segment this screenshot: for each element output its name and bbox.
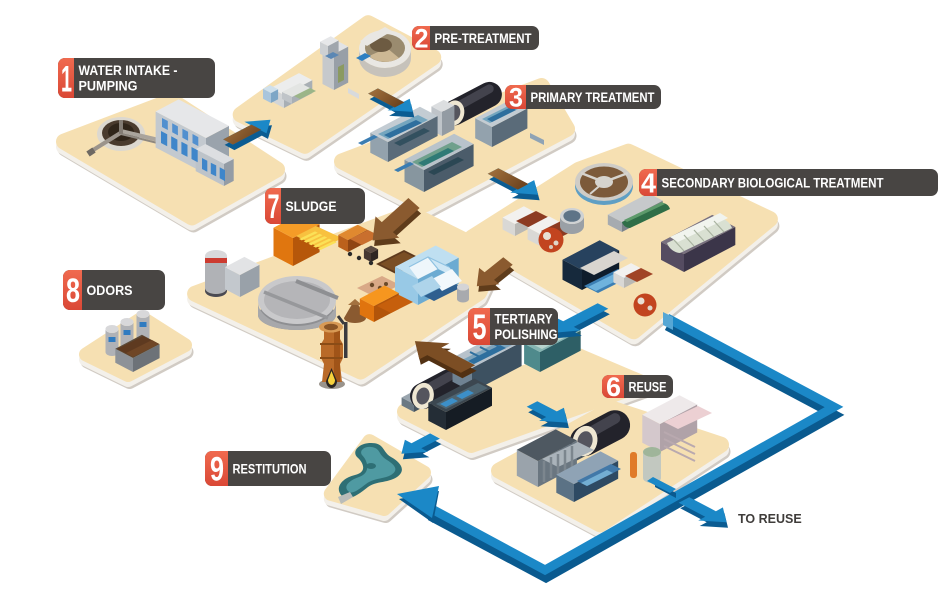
svg-text:REUSE: REUSE <box>629 379 667 394</box>
svg-text:PRE-TREATMENT: PRE-TREATMENT <box>435 31 533 46</box>
svg-text:PRIMARY TREATMENT: PRIMARY TREATMENT <box>531 90 656 105</box>
svg-text:WATER INTAKE -: WATER INTAKE - <box>79 63 178 78</box>
svg-text:9: 9 <box>210 451 224 489</box>
svg-text:1: 1 <box>61 58 72 99</box>
svg-text:TERTIARY: TERTIARY <box>495 312 553 327</box>
svg-text:2: 2 <box>415 24 429 54</box>
svg-text:8: 8 <box>66 272 80 310</box>
svg-text:RESTITUTION: RESTITUTION <box>233 461 307 476</box>
svg-text:ODORS: ODORS <box>87 283 133 298</box>
svg-text:4: 4 <box>641 168 656 199</box>
svg-text:TO REUSE: TO REUSE <box>738 512 802 526</box>
svg-text:POLISHING: POLISHING <box>495 327 558 342</box>
svg-text:6: 6 <box>606 372 621 402</box>
svg-text:SECONDARY BIOLOGICAL TREATMENT: SECONDARY BIOLOGICAL TREATMENT <box>662 175 885 190</box>
svg-text:PUMPING: PUMPING <box>79 79 138 94</box>
svg-text:3: 3 <box>509 83 523 113</box>
svg-text:5: 5 <box>473 308 487 347</box>
svg-text:SLUDGE: SLUDGE <box>286 199 337 214</box>
svg-text:7: 7 <box>268 188 280 226</box>
